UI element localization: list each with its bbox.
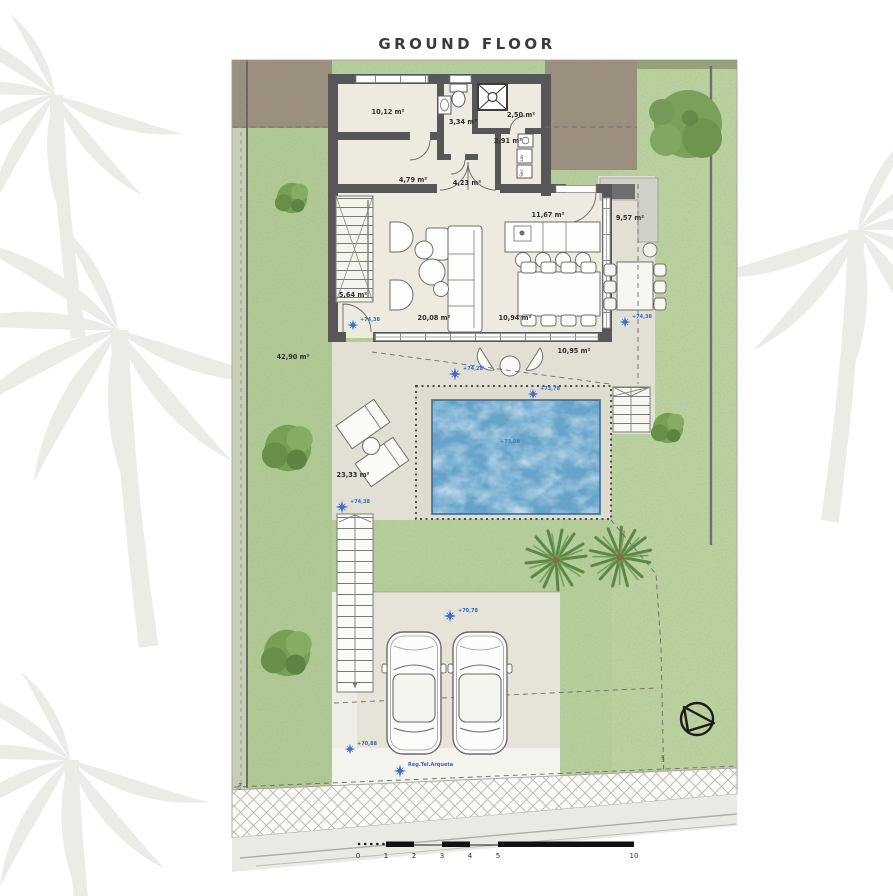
washer-label: Lav: [519, 154, 524, 162]
swimming-pool: [432, 400, 600, 514]
side-table: [415, 241, 433, 259]
room-label-poolterrace: 23,33 m²: [337, 471, 370, 479]
outdoor-chair: [654, 298, 666, 310]
room-label-terrace: 10,95 m²: [558, 347, 591, 355]
elevation-label: +74,38: [632, 314, 653, 320]
elevation-label: +74,38: [360, 317, 381, 323]
dryer-label: Sec: [519, 169, 524, 176]
floor-plan-page: GROUND FLOOR: [0, 0, 893, 896]
scale-tick-2: 2: [412, 852, 416, 860]
porch-dining-set: [604, 262, 666, 310]
room-label-porch: 9,57 m²: [616, 214, 644, 222]
outdoor-chair: [654, 281, 666, 293]
scale-tick-3: 3: [440, 852, 444, 860]
room-label-vestibule: 4,23 m²: [453, 179, 481, 187]
exterior-stairs-west: [337, 514, 373, 692]
dining-chair: [541, 262, 556, 273]
elevation-label: +73,78: [540, 386, 561, 392]
shower: [478, 84, 507, 110]
dining-chair: [581, 315, 596, 326]
benchmark-label: Reg.Tel.Arqueta: [408, 762, 453, 768]
dining-table: [518, 272, 600, 316]
car-top-view: [382, 632, 446, 754]
dining-chair: [561, 262, 576, 273]
room-label-hallway: 4,79 m²: [399, 176, 427, 184]
planter: [643, 243, 657, 257]
room-label-laundry: 2,91 m²: [494, 137, 522, 145]
boundary-label: LIM: [660, 754, 666, 762]
page-title: GROUND FLOOR: [378, 35, 555, 53]
dining-chair: [541, 315, 556, 326]
interior-staircase: [336, 196, 373, 302]
elevation-label: +73,08: [500, 439, 521, 445]
scale-tick-0: 0: [356, 852, 360, 860]
scale-tick-5: 5: [496, 852, 500, 860]
car-top-view: [448, 632, 512, 754]
outdoor-chair: [604, 298, 616, 310]
room-label-stairs: 5,64 m²: [339, 291, 367, 299]
room-label-dining: 10,94 m²: [499, 314, 532, 322]
dining-chair: [561, 315, 576, 326]
room-label-bedroom: 10,12 m²: [372, 108, 405, 116]
outdoor-table: [617, 262, 653, 310]
room-label-living: 20,08 m²: [418, 314, 451, 322]
outdoor-chair: [654, 264, 666, 276]
side-table: [434, 282, 449, 297]
exterior-stairs-east: [613, 387, 650, 432]
room-label-kitchen: 11,67 m²: [532, 211, 565, 219]
dining-chair: [521, 262, 536, 273]
tree: [649, 90, 722, 158]
scale-tick-10: 10: [630, 852, 639, 860]
elevation-label: +70,88: [357, 741, 378, 747]
elevation-label: +74,38: [350, 499, 371, 505]
dining-chair: [581, 262, 596, 273]
outdoor-chair: [604, 264, 616, 276]
south-window-band: [375, 334, 598, 341]
scale-tick-4: 4: [468, 852, 473, 860]
floor-plan-canvas: GROUND FLOOR: [0, 0, 893, 896]
outdoor-chair: [604, 281, 616, 293]
room-label-garden: 42,90 m²: [277, 353, 310, 361]
room-label-bathroom: 3,34 m²: [449, 118, 477, 126]
wc-icon: [452, 91, 465, 107]
elevation-label: +70,78: [458, 608, 479, 614]
patio-table: [500, 356, 520, 376]
elevation-label: +74,28: [463, 366, 484, 372]
pool-side-table: [363, 438, 380, 455]
west-boundary-strip: [232, 128, 247, 790]
sofa: [448, 226, 482, 332]
room-label-shower: 2,50 m²: [507, 111, 535, 119]
scale-tick-1: 1: [384, 852, 388, 860]
